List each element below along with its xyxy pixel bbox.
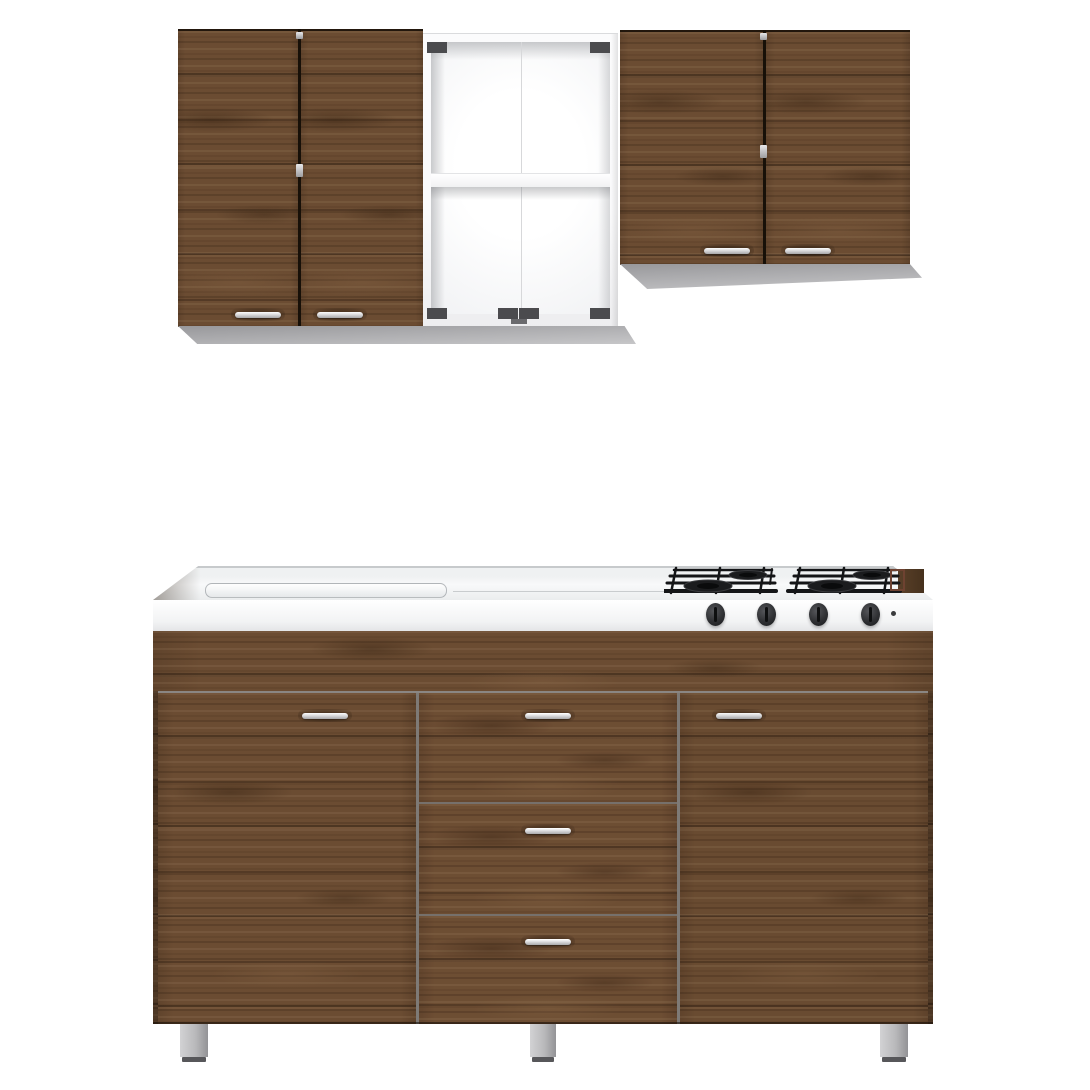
- drawer: [419, 804, 677, 914]
- burner-knob: [757, 603, 776, 626]
- underside-shadow-left: [178, 326, 636, 344]
- handle-bar: [716, 713, 762, 719]
- cabinet-leg: [530, 1024, 556, 1057]
- counter-fascia: [153, 600, 933, 632]
- handle-bar: [785, 248, 831, 254]
- handle-bar: [317, 312, 363, 318]
- burner: [684, 571, 891, 593]
- countertop-left-edge: [153, 566, 209, 600]
- hinge-plate: [590, 42, 610, 53]
- wall-right-door-left: [620, 30, 763, 265]
- handle-bar: [235, 312, 281, 318]
- hinge-plate: [427, 42, 447, 53]
- hinge-icon: [296, 32, 303, 39]
- hinge-icon: [296, 164, 303, 177]
- sink-outline: [205, 583, 447, 598]
- drawer-handle: [521, 709, 575, 722]
- door-handle: [781, 244, 835, 257]
- wall-cabinet-open: [423, 33, 618, 328]
- handle-bar: [704, 248, 750, 254]
- door-handle: [712, 709, 766, 722]
- drawer: [419, 916, 677, 1024]
- hinge-icon: [760, 33, 767, 40]
- shelf: [431, 173, 610, 187]
- door-handle: [700, 244, 754, 257]
- wall-right-door-right: [766, 30, 910, 265]
- underside-shadow-right: [620, 264, 922, 289]
- base-door-left: [158, 693, 416, 1024]
- wall-left-door-right: [301, 29, 423, 327]
- burner-knob: [706, 603, 725, 626]
- hinge-plate: [590, 308, 610, 319]
- side-panel-right: [928, 691, 933, 1024]
- door-handle: [231, 308, 285, 321]
- open-cabinet-interior: [431, 42, 610, 314]
- burner-knob: [861, 603, 880, 626]
- grate-end-frame: [891, 570, 904, 590]
- door-handle: [313, 308, 367, 321]
- cabinet-leg: [180, 1024, 208, 1057]
- drawer: [419, 693, 677, 802]
- cabinet-leg: [880, 1024, 908, 1057]
- wall-cabinet-right: [620, 30, 910, 265]
- base-door-right: [680, 693, 928, 1024]
- ignition-dot: [891, 611, 896, 616]
- drawer-stack: [419, 693, 677, 1024]
- cooktop-grate: [664, 564, 908, 596]
- kitchen-cabinet-set-image: [0, 0, 1090, 1090]
- handle-bar: [525, 828, 571, 834]
- handle-bar: [525, 939, 571, 945]
- apron-panel: [153, 631, 933, 691]
- handle-bar: [525, 713, 571, 719]
- handle-bar: [302, 713, 348, 719]
- hinge-tab: [511, 319, 527, 324]
- wall-left-door-left: [178, 29, 298, 327]
- burner-knob: [809, 603, 828, 626]
- hinge-icon: [760, 145, 767, 158]
- hinge-plate: [427, 308, 447, 319]
- drawer-handle: [521, 824, 575, 837]
- hinge-plate: [498, 308, 518, 319]
- wall-cabinet-left: [178, 29, 423, 327]
- hinge-plate: [519, 308, 539, 319]
- drawer-handle: [521, 935, 575, 948]
- base-cabinet-body: [153, 631, 933, 1024]
- door-handle: [298, 709, 352, 722]
